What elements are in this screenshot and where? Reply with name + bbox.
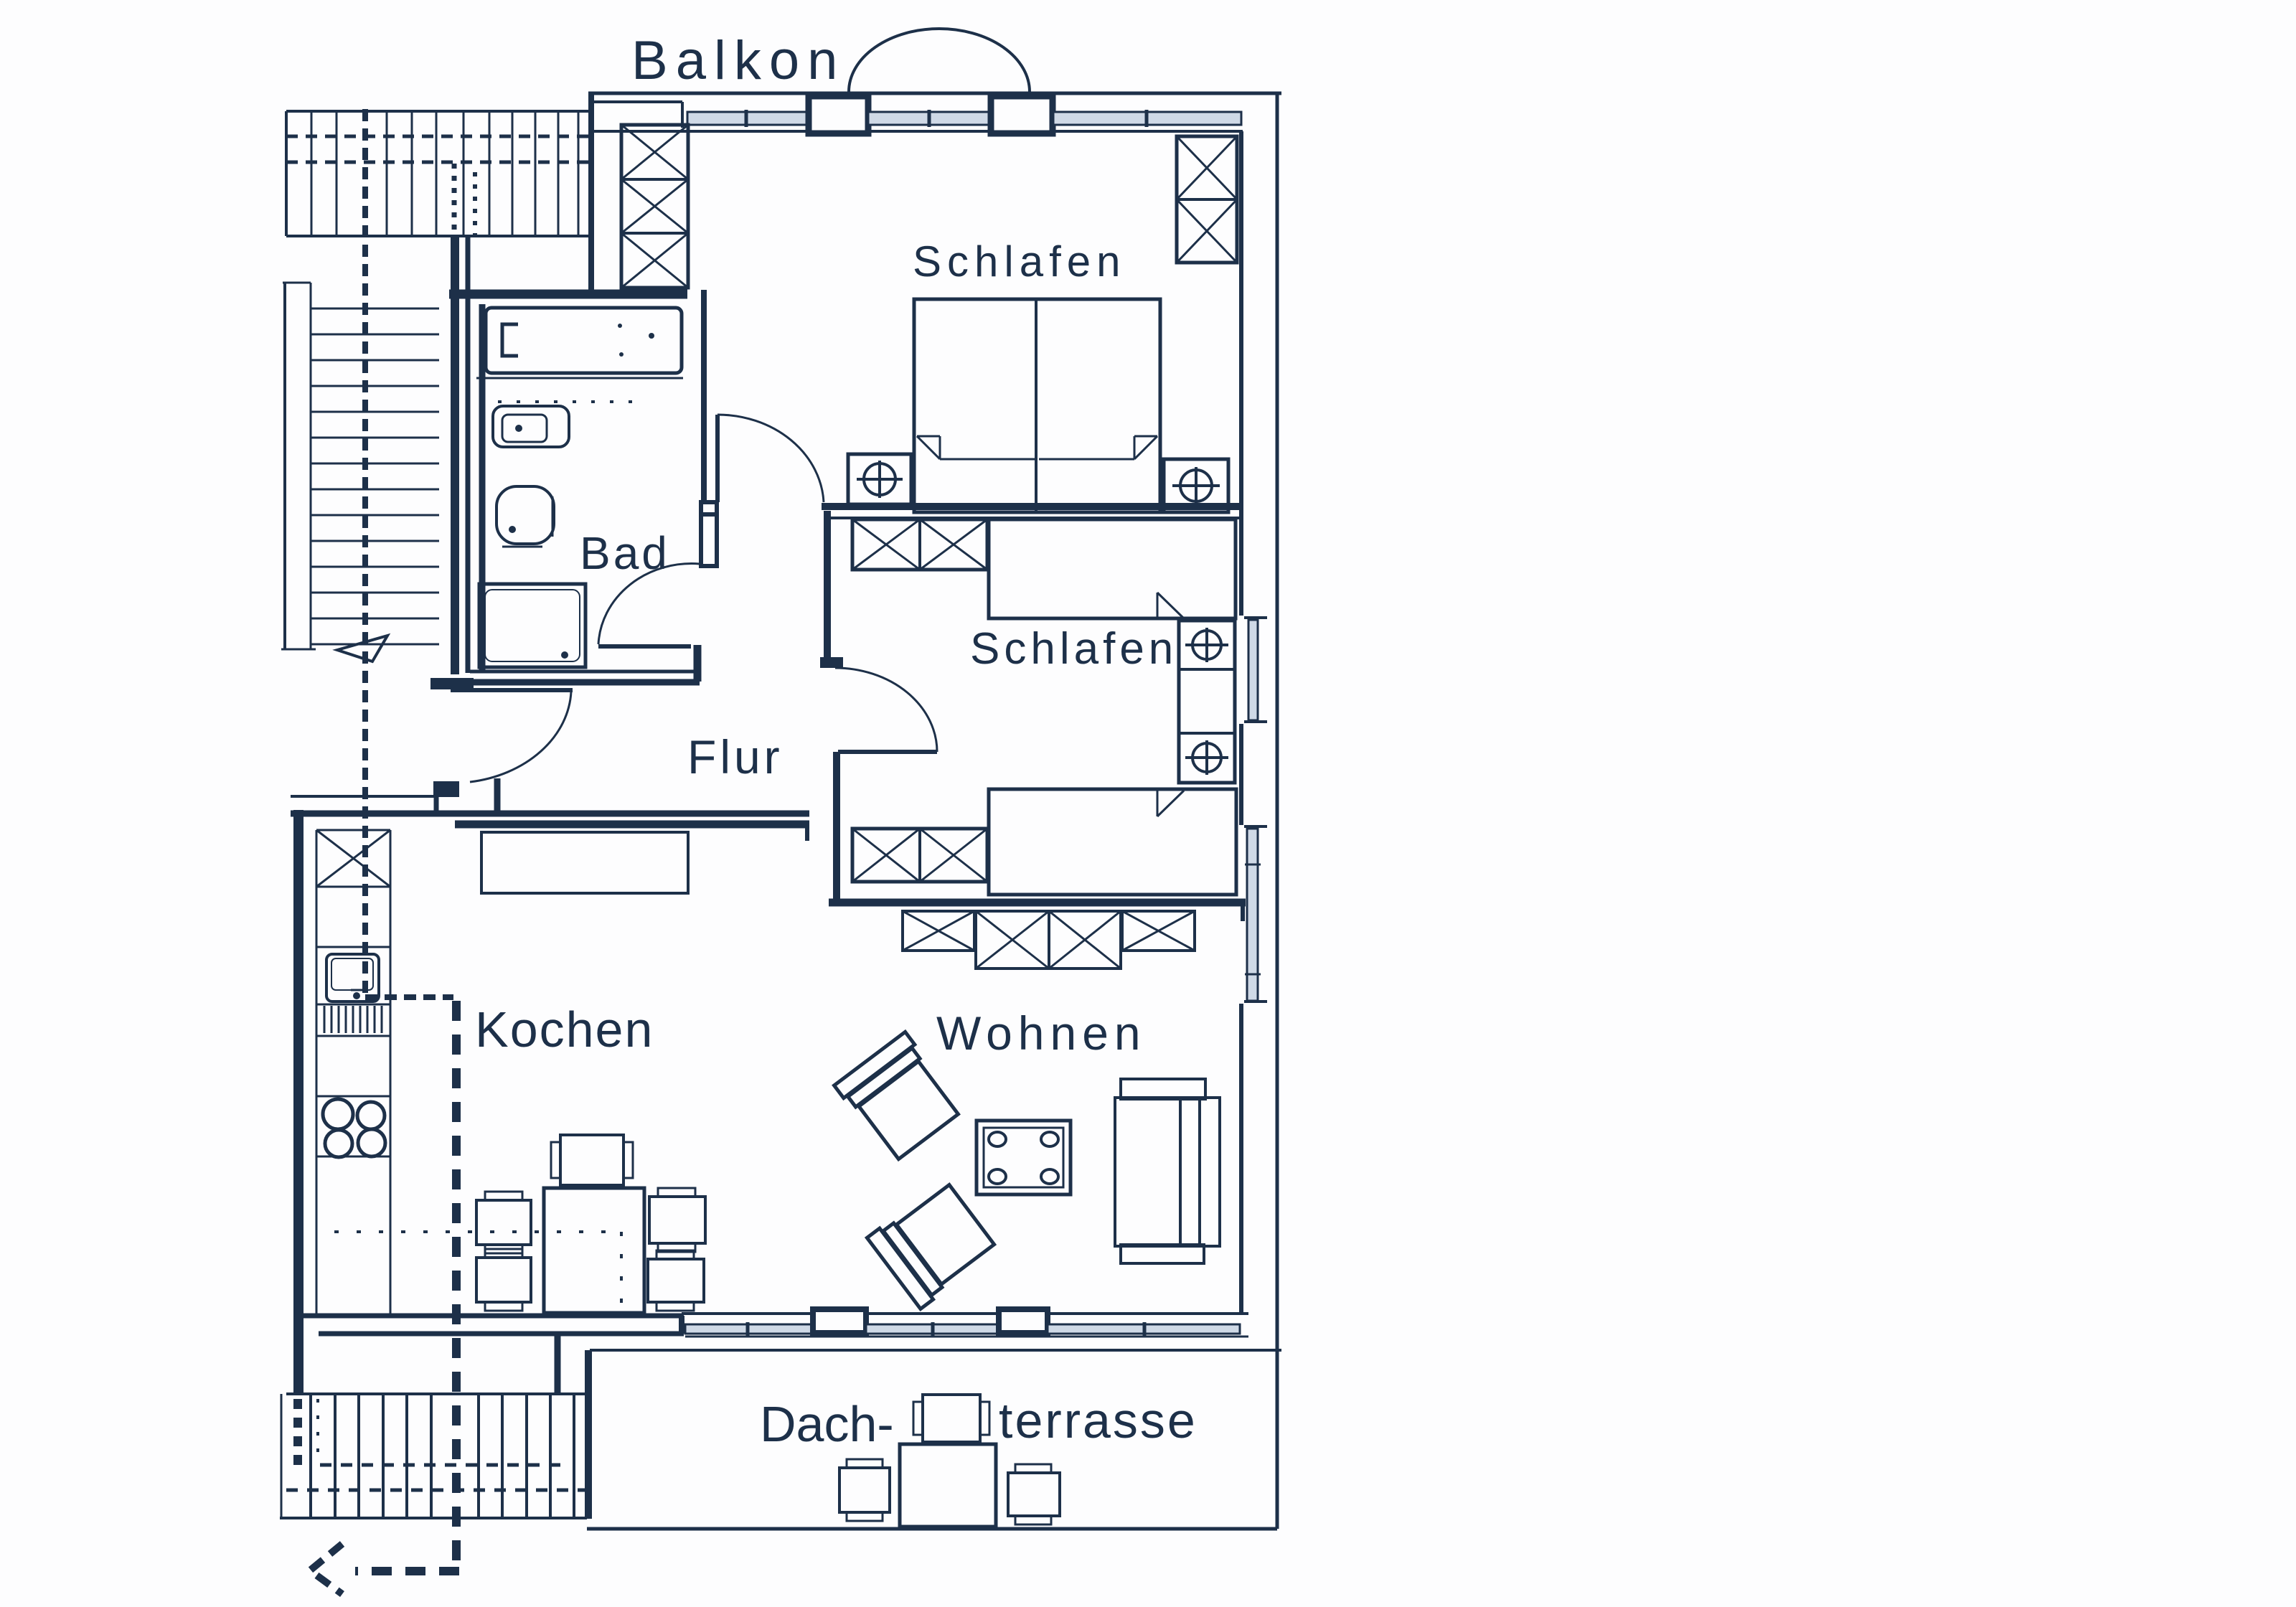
svg-text:Flur: Flur <box>687 730 784 783</box>
svg-text:Schlafen: Schlafen <box>970 624 1177 674</box>
svg-text:Schlafen: Schlafen <box>913 237 1126 286</box>
svg-text:Bad: Bad <box>580 527 670 579</box>
svg-text:Balkon: Balkon <box>631 30 845 91</box>
svg-text:Kochen: Kochen <box>475 1002 654 1057</box>
svg-text:Dach-: Dach- <box>760 1396 894 1452</box>
svg-text:Wohnen: Wohnen <box>936 1007 1147 1060</box>
svg-text:terrasse: terrasse <box>999 1392 1198 1448</box>
